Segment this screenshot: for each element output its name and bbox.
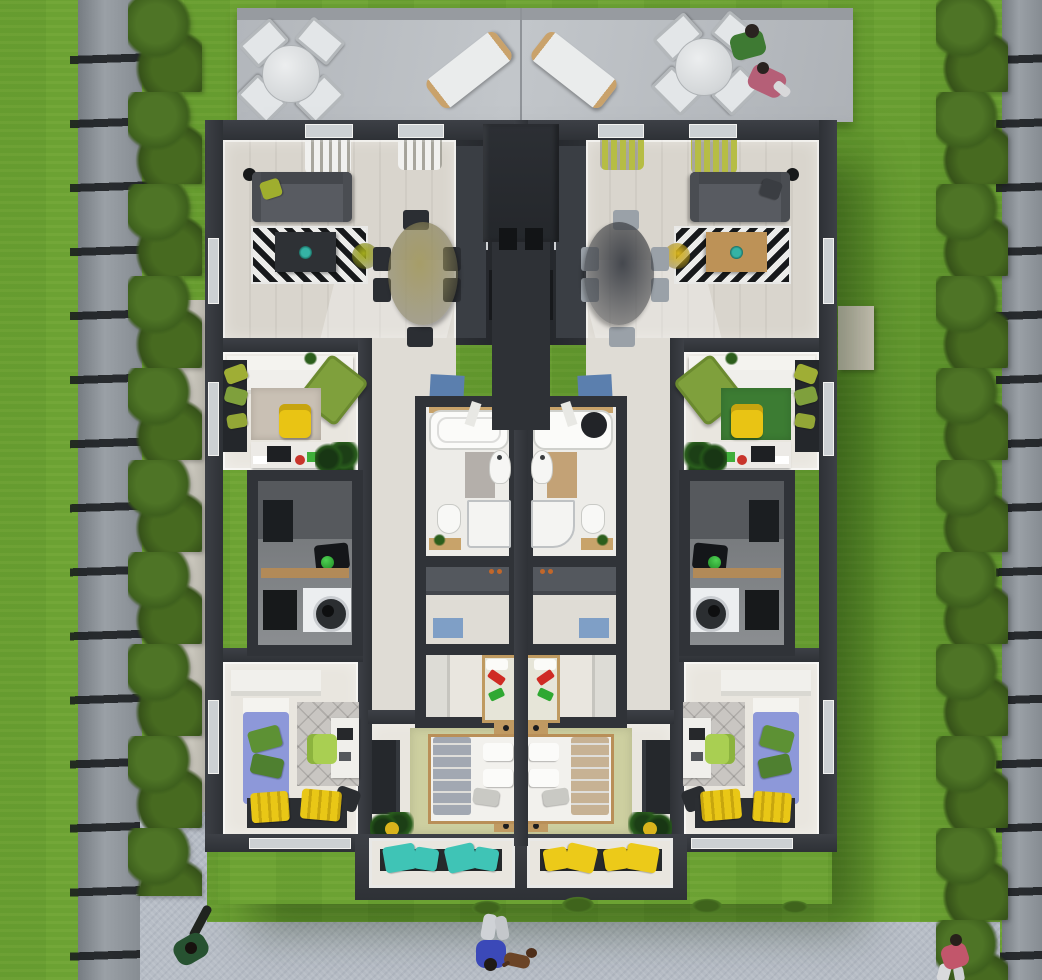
kids-wardrobe — [592, 655, 616, 717]
dining-table — [584, 222, 654, 325]
bed-pillow — [483, 743, 513, 761]
window-top — [598, 124, 644, 138]
kitchen-counter — [456, 146, 486, 338]
washing-machine — [691, 588, 739, 632]
red-cup — [737, 455, 747, 465]
walker-green — [168, 902, 218, 972]
open-cabinet — [745, 590, 779, 630]
person-pink — [747, 62, 795, 106]
bed-pillow — [529, 743, 559, 761]
patio-divider — [520, 8, 522, 122]
window-side — [208, 382, 219, 456]
ac-unit — [838, 306, 874, 370]
floor-plan-render — [0, 0, 1042, 980]
dining-chair — [609, 327, 635, 347]
door-knob — [497, 569, 502, 574]
wall-basin — [489, 450, 511, 484]
table-plant — [730, 246, 743, 259]
coffee-table — [275, 232, 336, 272]
toy-red — [487, 669, 506, 686]
patio-edge — [237, 8, 853, 20]
bay-cushion — [602, 846, 629, 871]
guest-wardrobe — [231, 670, 321, 696]
sofa — [690, 172, 790, 222]
core-chimney-mid — [492, 242, 550, 430]
wall-top — [205, 120, 521, 140]
hall-doormat — [579, 618, 609, 638]
desk-chair-lime — [705, 734, 735, 764]
desk-chair-lime — [307, 734, 337, 764]
walker-pink — [934, 930, 978, 980]
laptop — [751, 446, 775, 462]
bay-cushion — [542, 846, 569, 872]
toilet — [437, 504, 461, 534]
green-pillow — [247, 724, 284, 754]
core-chimney-top — [483, 124, 559, 242]
toy-green — [537, 687, 554, 701]
kids-bed — [524, 655, 560, 723]
shelf-plant — [303, 352, 318, 365]
door-knob — [540, 569, 545, 574]
utility-recess — [263, 500, 293, 542]
unit-left — [205, 120, 521, 905]
built-in-wardrobe — [533, 567, 616, 595]
person-green-shirt — [731, 24, 775, 64]
curtain — [305, 140, 351, 174]
window-top — [398, 124, 444, 138]
red-cup — [295, 455, 305, 465]
wall-living-office — [223, 338, 360, 352]
bay-cushion — [624, 842, 660, 873]
corridor-floor — [624, 352, 670, 724]
window-top — [305, 124, 353, 138]
desk-chair-yellow — [731, 404, 763, 438]
guest-wardrobe — [721, 670, 811, 696]
master-wardrobe — [372, 740, 400, 814]
paper — [775, 456, 789, 464]
yellow-cushions — [300, 788, 342, 821]
window-side — [208, 700, 219, 774]
shower — [531, 500, 575, 548]
grass-tuft — [780, 900, 810, 914]
green-pillow — [249, 753, 284, 779]
coffee-table — [706, 232, 767, 272]
bed-cushion — [542, 787, 570, 806]
wall-basin — [531, 450, 553, 484]
worktop — [261, 568, 349, 578]
dining-chair — [407, 327, 433, 347]
window-side — [208, 238, 219, 304]
kitchen-counter — [556, 146, 586, 338]
open-cabinet — [263, 590, 297, 630]
bath-plant — [433, 534, 446, 546]
door-knob — [548, 569, 553, 574]
dining-chair — [651, 278, 669, 302]
patio-table — [675, 38, 733, 96]
window-side — [823, 700, 834, 774]
bay-cushion — [382, 842, 418, 873]
hedge-row-left — [128, 0, 202, 896]
core-recess — [499, 228, 517, 250]
yellow-cushions — [700, 788, 742, 821]
desk-chair-yellow — [279, 404, 311, 438]
door-knob — [489, 569, 494, 574]
bath-plant — [596, 534, 609, 546]
hall-doormat — [433, 618, 463, 638]
window-bottom — [249, 838, 351, 849]
toilet — [581, 504, 605, 534]
grass-tuft — [690, 898, 724, 914]
laptop — [267, 446, 291, 462]
green-pillow — [757, 753, 792, 779]
shelf-plant — [724, 352, 739, 365]
yellow-cushions — [250, 791, 290, 824]
kids-bed — [482, 655, 518, 723]
master-bed — [516, 734, 614, 824]
paper — [253, 456, 267, 464]
window-side — [823, 382, 834, 456]
shower — [467, 500, 511, 548]
bed-pillow — [483, 769, 513, 787]
washing-machine — [303, 588, 351, 632]
wall-living-office — [682, 338, 819, 352]
patio-table — [262, 45, 320, 103]
patio — [237, 8, 853, 122]
bay-window — [527, 838, 673, 888]
unit-right — [521, 120, 837, 905]
bed-pillow — [529, 769, 559, 787]
green-pillow — [759, 724, 796, 754]
duvet — [433, 737, 471, 815]
master-bed — [428, 734, 526, 824]
worktop — [693, 568, 781, 578]
sun-lounger — [528, 29, 620, 112]
hedge-row-right — [936, 0, 1008, 980]
kids-pillow — [534, 659, 556, 670]
front-sidewalk — [140, 922, 1000, 980]
dining-table — [388, 222, 458, 325]
window-top — [689, 124, 737, 138]
bed-cushion — [472, 787, 500, 806]
corridor-floor — [372, 352, 418, 724]
bay-cushion — [472, 846, 499, 872]
window-side — [823, 238, 834, 304]
window-bottom — [691, 838, 793, 849]
wall-top — [521, 120, 837, 140]
yellow-cushions — [752, 791, 792, 824]
bay-window — [369, 838, 515, 888]
master-wardrobe — [642, 740, 670, 814]
bay-cushion — [412, 846, 439, 871]
curtain — [600, 140, 644, 170]
toy-red — [536, 669, 555, 686]
sun-lounger — [423, 29, 515, 112]
kids-pillow — [486, 659, 508, 670]
duvet — [571, 737, 609, 815]
curtain — [398, 140, 442, 170]
toy-green — [488, 687, 505, 701]
utility-recess — [749, 500, 779, 542]
curtain — [691, 140, 737, 174]
core-recess — [525, 228, 543, 250]
grass-tuft — [560, 896, 596, 914]
kids-wardrobe — [426, 655, 450, 717]
dog — [502, 946, 544, 980]
table-plant — [299, 246, 312, 259]
sofa — [252, 172, 352, 222]
round-black-basin — [581, 412, 607, 438]
